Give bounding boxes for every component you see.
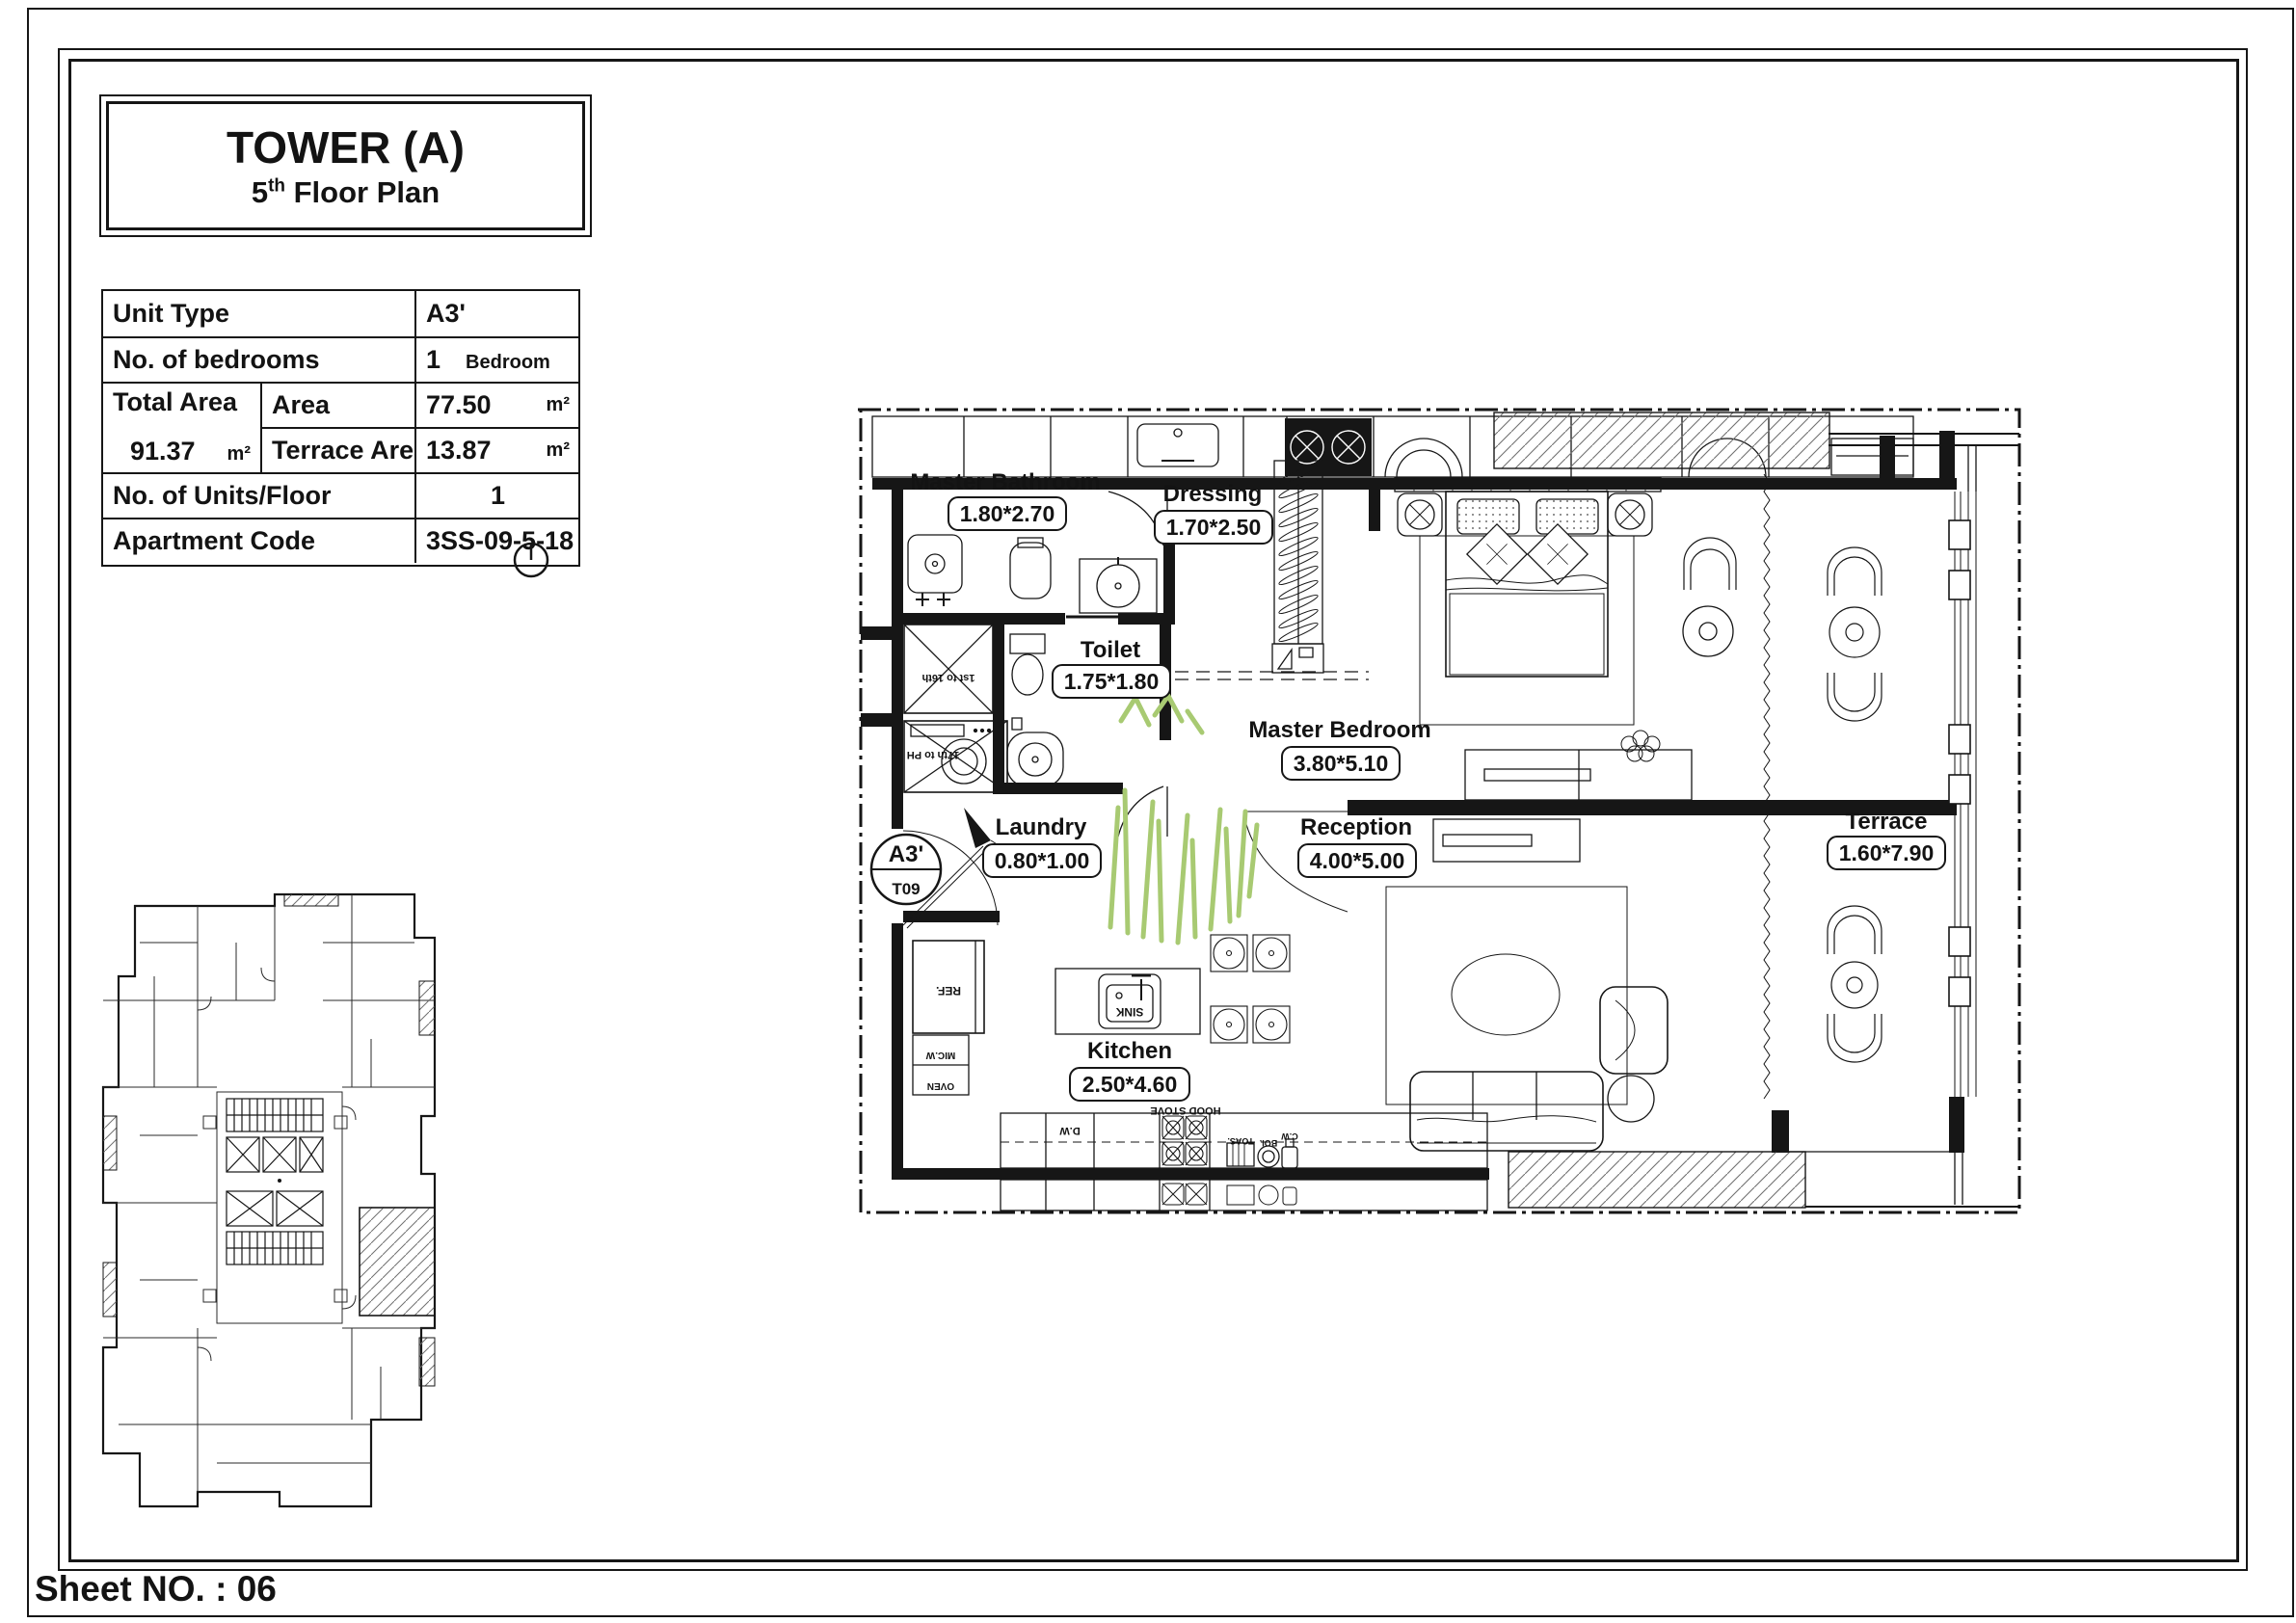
total-area-value: 91.37	[130, 437, 196, 466]
dressing-wardrobe	[1272, 461, 1323, 673]
shaft-upper-label: 1st to 16th	[921, 672, 974, 683]
plant	[1110, 696, 1257, 943]
hood-stove-label: HOOD STOVE	[1150, 1104, 1220, 1116]
apartment-code-value: 3SS-09-5-18	[414, 518, 579, 563]
terrace-window-wall	[1949, 492, 1976, 1097]
bedrooms-number: 1	[426, 345, 441, 375]
room-label-toilet: Toilet	[1081, 637, 1140, 663]
total-area-unit: m²	[227, 443, 251, 466]
bedrooms-value: 1Bedroom	[414, 336, 579, 382]
key-plan	[82, 885, 448, 1526]
boiler-label: BOI.	[1260, 1138, 1278, 1148]
shaft-lower-label: 17th to PH	[907, 749, 959, 760]
bedrooms-unit: Bedroom	[466, 352, 550, 374]
room-dim-terrace: 1.60*7.90	[1839, 840, 1934, 865]
room-dim-laundry: 0.80*1.00	[995, 848, 1089, 873]
room-dim-master-bedroom: 3.80*5.10	[1294, 751, 1388, 776]
terrace-area-label: Terrace Area	[260, 427, 414, 472]
room-label-master-bedroom: Master Bedroom	[1248, 717, 1430, 743]
mic-label: MIC.W	[925, 1050, 955, 1060]
apartment-code-label: Apartment Code	[103, 518, 414, 563]
room-label-kitchen: Kitchen	[1087, 1038, 1172, 1064]
key-plan-partitions	[103, 894, 435, 1492]
oven-label: OVEN	[927, 1080, 954, 1091]
title-block: TOWER (A) 5th Floor Plan	[99, 94, 592, 237]
unit-badge-tower: T09	[892, 880, 920, 898]
floor-ordinal: th	[268, 176, 285, 197]
slab-hatch-bottom	[1508, 1152, 1805, 1208]
room-dim-reception: 4.00*5.00	[1310, 848, 1404, 873]
key-plan-core	[227, 1099, 323, 1264]
unit-type-label: Unit Type	[103, 291, 414, 336]
unit-badge-code: A3'	[889, 841, 923, 867]
room-label-reception: Reception	[1300, 814, 1412, 840]
slab-hatch-top	[1494, 412, 1829, 468]
room-dim-dressing: 1.70*2.50	[1166, 515, 1261, 540]
units-per-floor-label: No. of Units/Floor	[103, 472, 414, 518]
room-dim-toilet: 1.75*1.80	[1064, 669, 1159, 694]
dw-label: D.W	[1059, 1125, 1081, 1136]
total-area-cell: Total Area 91.37m²	[103, 382, 260, 472]
room-dim-master-bathroom: 1.80*2.70	[960, 501, 1055, 526]
room-dim-kitchen: 2.50*4.60	[1082, 1072, 1177, 1097]
area-unit: m²	[547, 394, 570, 416]
sink-label: SINK	[1115, 1005, 1143, 1019]
area-label: Area	[260, 382, 414, 427]
floor-title-rest: Floor Plan	[285, 175, 440, 209]
unit-info-table: Unit Type A3' No. of bedrooms 1Bedroom T…	[101, 289, 580, 567]
sheet-number: Sheet NO. : 06	[35, 1569, 277, 1610]
unit-type-value: A3'	[414, 291, 579, 336]
drawing-sheet: TOWER (A) 5th Floor Plan Unit Type A3' N…	[0, 0, 2296, 1623]
floor-subtitle: 5th Floor Plan	[252, 175, 440, 210]
key-plan-highlighted-unit	[360, 1208, 435, 1316]
bedrooms-label: No. of bedrooms	[103, 336, 414, 382]
main-floor-plan: 1st to 16th 17th to PH	[848, 246, 2072, 1296]
cw-label: C.W	[1281, 1131, 1298, 1141]
toaster-label: TOAS.	[1227, 1136, 1253, 1146]
area-value: 77.50	[426, 390, 492, 420]
room-label-laundry: Laundry	[996, 814, 1087, 840]
key-plan-outline	[103, 894, 435, 1506]
room-label-master-bathroom: Master Bathroom	[910, 469, 1100, 495]
master-bedroom-furniture	[1395, 478, 1736, 800]
units-per-floor-value: 1	[414, 472, 579, 518]
north-indicator-icon	[509, 538, 553, 582]
room-label-terrace: Terrace	[1846, 809, 1928, 835]
floor-number: 5	[252, 175, 268, 209]
reception-furniture	[1386, 819, 1668, 1151]
terrace-area-unit: m²	[547, 439, 570, 462]
total-area-label: Total Area	[113, 387, 251, 417]
area-value-cell: 77.50m²	[414, 382, 579, 427]
curtain-zigzag	[1764, 474, 1770, 1099]
ref-label: REF.	[936, 984, 961, 998]
tower-title: TOWER (A)	[227, 121, 465, 173]
laundry-shafts	[904, 625, 1007, 792]
title-block-inner: TOWER (A) 5th Floor Plan	[106, 101, 585, 230]
terrace-area-value-cell: 13.87m²	[414, 427, 579, 472]
terrace-area-value: 13.87	[426, 436, 492, 466]
room-label-dressing: Dressing	[1163, 481, 1263, 507]
